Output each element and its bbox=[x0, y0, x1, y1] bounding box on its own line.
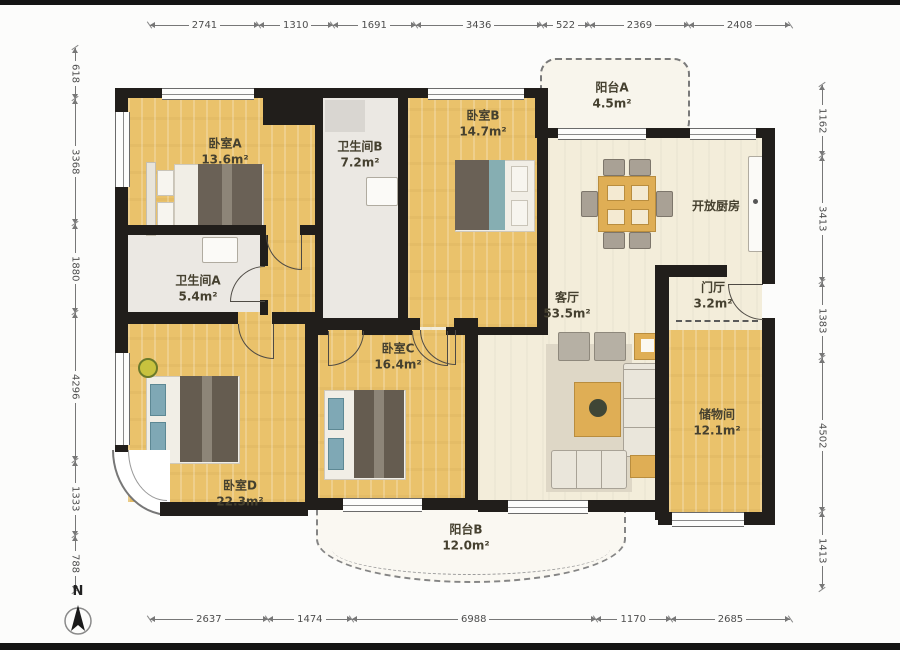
dimension-segment: 1162 bbox=[815, 85, 829, 156]
room-area: 22.3m² bbox=[216, 494, 263, 510]
wall bbox=[128, 312, 238, 324]
room-area: 4.5m² bbox=[592, 96, 631, 112]
room-name: 卧室B bbox=[459, 108, 506, 124]
room-label-bedroom-a: 卧室A 13.6m² bbox=[201, 136, 248, 167]
room-name: 客厅 bbox=[543, 290, 590, 306]
room-area: 53.5m² bbox=[543, 306, 590, 322]
bathroom-b-sink bbox=[366, 177, 398, 206]
wall bbox=[454, 318, 478, 330]
bottom-letterbox-bar bbox=[0, 643, 900, 650]
wall bbox=[315, 98, 323, 335]
dimension-segment: 522 bbox=[542, 18, 590, 32]
room-name: 卧室A bbox=[201, 136, 248, 152]
room-area: 12.0m² bbox=[442, 538, 489, 554]
place-setting bbox=[607, 209, 625, 225]
room-name: 卫生间A bbox=[175, 273, 220, 289]
dimension-segment: 6988 bbox=[352, 612, 596, 626]
room-label-bedroom-d: 卧室D 22.3m² bbox=[216, 478, 263, 509]
bed-c-pillow bbox=[328, 398, 344, 430]
dimension-value: 2741 bbox=[189, 20, 220, 31]
bed-c-blanket-stripe bbox=[374, 390, 384, 478]
wall bbox=[272, 312, 318, 324]
window bbox=[343, 498, 422, 512]
dimension-value: 1880 bbox=[70, 253, 81, 284]
bed-c bbox=[324, 388, 406, 480]
room-label-foyer: 门厅 3.2m² bbox=[693, 280, 732, 311]
dimension-segment: 3436 bbox=[416, 18, 542, 32]
room-area: 7.2m² bbox=[337, 155, 382, 171]
sink-drain bbox=[753, 199, 758, 204]
plant bbox=[138, 358, 158, 378]
dimension-value: 1474 bbox=[294, 614, 325, 625]
bed-a bbox=[146, 162, 264, 234]
dining-chair bbox=[629, 232, 651, 249]
dimension-value: 3436 bbox=[463, 20, 494, 31]
room-name: 卫生间B bbox=[337, 139, 382, 155]
dimension-segment: 4296 bbox=[68, 313, 82, 462]
bed-b-pillow bbox=[511, 200, 528, 226]
bed-d-blanket-stripe bbox=[202, 376, 212, 462]
dimension-value: 3368 bbox=[70, 146, 81, 177]
room-label-storage: 储物间 12.1m² bbox=[693, 407, 740, 438]
dimension-value: 1162 bbox=[817, 105, 828, 136]
dimension-value: 3413 bbox=[817, 203, 828, 234]
bed-c-pillow bbox=[328, 438, 344, 470]
bed-d-pillow bbox=[150, 384, 166, 416]
dimension-segment: 2369 bbox=[590, 18, 690, 32]
north-indicator: N bbox=[58, 584, 98, 643]
room-area: 5.4m² bbox=[175, 289, 220, 305]
dimension-chain-bottom: 26371474698811702685 bbox=[150, 612, 790, 626]
dimension-segment: 1474 bbox=[268, 612, 352, 626]
dimension-value: 4502 bbox=[817, 420, 828, 451]
wall bbox=[465, 330, 478, 508]
wall bbox=[655, 268, 669, 520]
bed-b bbox=[455, 158, 537, 232]
bed-a-pillow bbox=[157, 170, 174, 196]
bathroom-a-sink bbox=[202, 237, 238, 263]
bed-b-pillow bbox=[511, 166, 528, 192]
dimension-value: 788 bbox=[70, 551, 81, 576]
room-label-bathroom-a: 卫生间A 5.4m² bbox=[175, 273, 220, 304]
wall bbox=[318, 498, 343, 510]
room-label-living: 客厅 53.5m² bbox=[543, 290, 590, 321]
dimension-value: 2408 bbox=[724, 20, 755, 31]
side-table bbox=[630, 455, 658, 478]
dimension-segment: 3413 bbox=[815, 156, 829, 283]
bed-a-blanket-stripe bbox=[222, 164, 232, 232]
dimension-chain-right: 11623413138345021413 bbox=[815, 85, 829, 589]
dimension-segment: 1310 bbox=[259, 18, 333, 32]
shower-area bbox=[325, 100, 365, 132]
room-name: 卧室C bbox=[374, 341, 421, 357]
dimension-segment: 3368 bbox=[68, 99, 82, 225]
room-name: 阳台B bbox=[442, 522, 489, 538]
dimension-value: 6988 bbox=[458, 614, 489, 625]
dimension-value: 1691 bbox=[358, 20, 389, 31]
dimension-segment: 2741 bbox=[150, 18, 259, 32]
room-name: 卧室D bbox=[216, 478, 263, 494]
room-label-bedroom-b: 卧室B 14.7m² bbox=[459, 108, 506, 139]
wall bbox=[588, 500, 658, 512]
dining-chair bbox=[629, 159, 651, 176]
place-setting bbox=[631, 209, 649, 225]
dimension-chain-left: 6183368188042961333788 bbox=[68, 48, 82, 591]
side-table-top bbox=[641, 339, 654, 352]
wall bbox=[128, 225, 266, 235]
table-plant bbox=[589, 399, 607, 417]
room-label-balcony-b: 阳台B 12.0m² bbox=[442, 522, 489, 553]
window bbox=[558, 128, 646, 140]
dimension-value: 1333 bbox=[70, 483, 81, 514]
dining-chair bbox=[603, 232, 625, 249]
window bbox=[672, 512, 744, 527]
dimension-segment: 1333 bbox=[68, 461, 82, 536]
sofa-loveseat bbox=[551, 450, 627, 489]
room-area: 14.7m² bbox=[459, 124, 506, 140]
armchair bbox=[558, 332, 590, 361]
room-area: 12.1m² bbox=[693, 423, 740, 439]
dimension-segment: 1170 bbox=[596, 612, 671, 626]
window bbox=[428, 88, 524, 100]
window bbox=[690, 128, 756, 140]
window bbox=[115, 353, 130, 445]
wall bbox=[762, 128, 775, 284]
room-name: 门厅 bbox=[693, 280, 732, 296]
dimension-value: 4296 bbox=[70, 371, 81, 402]
room-label-balcony-a: 阳台A 4.5m² bbox=[592, 80, 631, 111]
compass-icon bbox=[58, 599, 98, 639]
dimension-segment: 2637 bbox=[150, 612, 268, 626]
dimension-segment: 1880 bbox=[68, 224, 82, 312]
dimension-value: 2685 bbox=[715, 614, 746, 625]
dimension-segment: 1413 bbox=[815, 512, 829, 589]
place-setting bbox=[631, 185, 649, 201]
wall bbox=[422, 498, 478, 510]
dimension-segment: 4502 bbox=[815, 358, 829, 512]
floor-plan-page: 卧室A 13.6m² 卫生间B 7.2m² 卧室B 14.7m² 阳台A 4.5… bbox=[0, 0, 900, 650]
bed-b-blanket bbox=[455, 160, 489, 230]
place-setting bbox=[607, 185, 625, 201]
window bbox=[162, 88, 254, 100]
wall bbox=[655, 265, 727, 277]
storage-opening-dashed bbox=[676, 320, 758, 322]
room-name: 储物间 bbox=[693, 407, 740, 423]
dimension-segment: 618 bbox=[68, 48, 82, 99]
coffee-table bbox=[574, 382, 621, 437]
dining-chair bbox=[581, 191, 598, 217]
wall bbox=[305, 324, 318, 510]
room-name: 开放厨房 bbox=[692, 199, 740, 215]
dimension-segment: 2685 bbox=[671, 612, 790, 626]
room-area: 16.4m² bbox=[374, 357, 421, 373]
room-label-kitchen: 开放厨房 bbox=[692, 199, 740, 215]
north-label: N bbox=[58, 584, 98, 599]
bed-b-throw bbox=[489, 160, 505, 230]
window bbox=[115, 112, 130, 187]
wall bbox=[478, 500, 508, 512]
dimension-segment: 788 bbox=[68, 536, 82, 591]
dimension-value: 1170 bbox=[617, 614, 648, 625]
wall bbox=[398, 98, 408, 335]
dining-chair bbox=[656, 191, 673, 217]
room-area: 13.6m² bbox=[201, 152, 248, 168]
dimension-chain-top: 274113101691343652223692408 bbox=[150, 18, 790, 32]
dimension-value: 1383 bbox=[817, 305, 828, 336]
top-letterbox-bar bbox=[0, 0, 900, 5]
wall bbox=[263, 88, 318, 125]
wall bbox=[762, 318, 775, 525]
dimension-segment: 1383 bbox=[815, 282, 829, 358]
dining-chair bbox=[603, 159, 625, 176]
room-label-bedroom-c: 卧室C 16.4m² bbox=[374, 341, 421, 372]
dining-table bbox=[598, 176, 656, 232]
dimension-value: 1310 bbox=[280, 20, 311, 31]
dimension-value: 522 bbox=[553, 20, 578, 31]
window bbox=[508, 500, 588, 514]
wall bbox=[260, 300, 268, 315]
armchair bbox=[594, 332, 626, 361]
dimension-value: 618 bbox=[70, 61, 81, 86]
dimension-value: 2369 bbox=[624, 20, 655, 31]
dimension-value: 1413 bbox=[817, 535, 828, 566]
dimension-segment: 1691 bbox=[333, 18, 416, 32]
dimension-segment: 2408 bbox=[689, 18, 790, 32]
wall bbox=[318, 318, 420, 330]
room-name: 阳台A bbox=[592, 80, 631, 96]
dimension-value: 2637 bbox=[193, 614, 224, 625]
room-area: 3.2m² bbox=[693, 296, 732, 312]
room-label-bathroom-b: 卫生间B 7.2m² bbox=[337, 139, 382, 170]
bathroom-b-floor bbox=[323, 98, 398, 327]
